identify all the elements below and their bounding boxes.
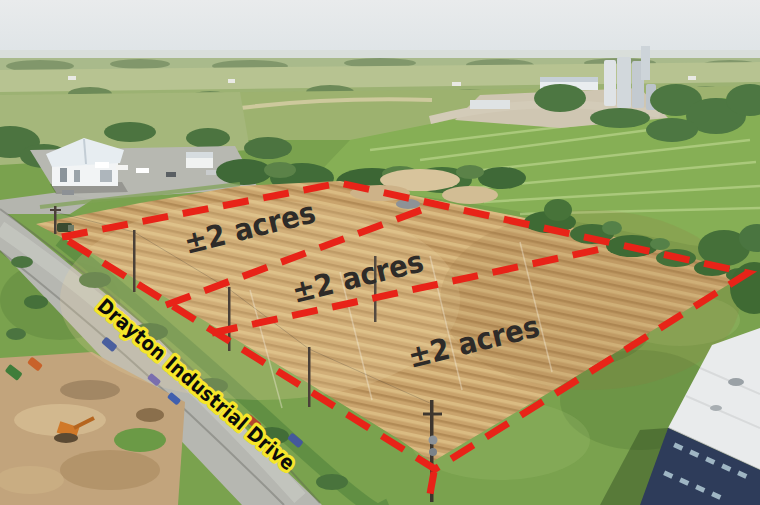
aerial-photo: ±2 acres ±2 acres ±2 acres Drayton Indus… bbox=[0, 0, 760, 505]
tractor bbox=[57, 223, 74, 232]
roof-vent bbox=[728, 378, 744, 386]
small-white-building bbox=[186, 152, 213, 168]
low-building bbox=[470, 100, 510, 109]
dirt-pile bbox=[136, 408, 164, 422]
photo-canvas: ±2 acres ±2 acres ±2 acres Drayton Indus… bbox=[0, 0, 760, 505]
